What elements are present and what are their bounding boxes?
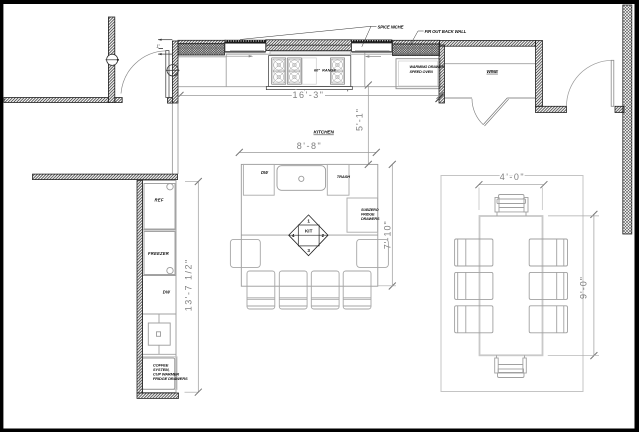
svg-text:DRAWERS: DRAWERS: [361, 217, 380, 221]
svg-text:DW: DW: [163, 289, 171, 294]
svg-text:4: 4: [292, 233, 295, 238]
svg-text:5'-1": 5'-1": [354, 108, 364, 131]
svg-text:KIT: KIT: [305, 228, 313, 233]
svg-text:REF: REF: [155, 197, 164, 202]
svg-text:WARMING DRAWER: WARMING DRAWER: [410, 65, 445, 69]
svg-text:2: 2: [322, 233, 325, 238]
svg-text:13'-7 1/2": 13'-7 1/2": [183, 258, 193, 311]
svg-text:7'-10": 7'-10": [383, 220, 393, 249]
svg-text:1': 1': [157, 43, 160, 48]
svg-text:3: 3: [307, 248, 310, 253]
svg-text:16'-3": 16'-3": [293, 90, 325, 100]
svg-text:DW: DW: [261, 170, 269, 175]
svg-text:TRASH: TRASH: [337, 174, 350, 179]
svg-text:SPICE NICHE: SPICE NICHE: [378, 24, 404, 29]
svg-text:8'-8": 8'-8": [297, 141, 322, 151]
svg-text:SPEED OVEN: SPEED OVEN: [410, 70, 434, 74]
svg-text:FRIDGE: FRIDGE: [361, 213, 375, 217]
svg-text:FRIDGE DRAWERS: FRIDGE DRAWERS: [153, 376, 188, 381]
svg-text:9'-0": 9'-0": [578, 276, 588, 299]
svg-text:4'-0": 4'-0": [500, 172, 525, 182]
svg-text:1: 1: [307, 219, 310, 224]
svg-text:FIR OUT BACK WALL: FIR OUT BACK WALL: [425, 29, 467, 34]
svg-text:WINE: WINE: [487, 69, 499, 74]
svg-text:FREEZER: FREEZER: [148, 251, 169, 256]
svg-text:60" RANGE: 60" RANGE: [314, 68, 336, 72]
svg-text:KITCHEN: KITCHEN: [314, 130, 335, 136]
